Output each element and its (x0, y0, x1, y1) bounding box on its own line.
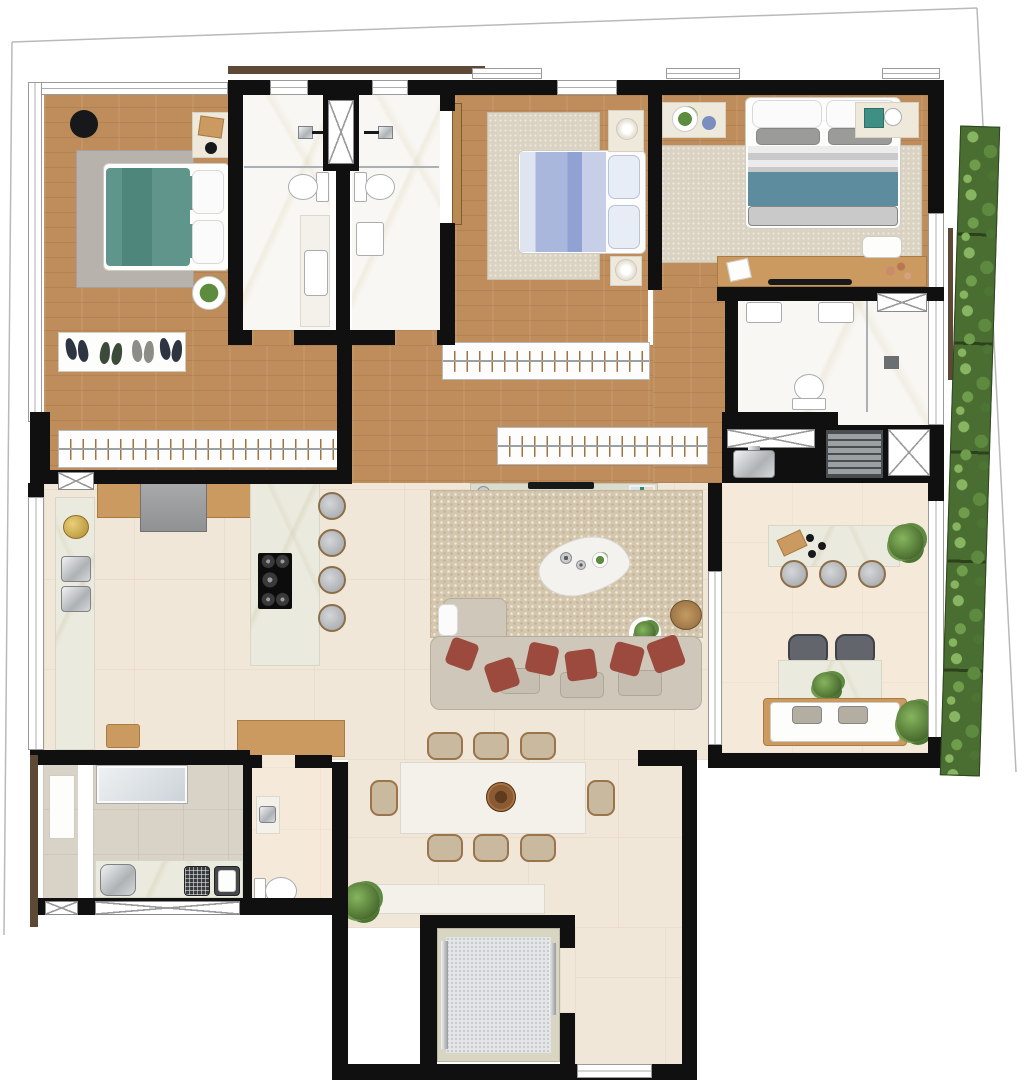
window-bed1-left (28, 82, 42, 422)
bed3-pillow-1 (752, 100, 822, 128)
glass-bath2 (353, 166, 439, 168)
bed3-duvet (748, 146, 898, 174)
bench-kitchen (237, 720, 345, 757)
sink-master-1 (746, 302, 782, 323)
floor-elevator-landing (560, 948, 575, 1013)
window-top-2 (372, 80, 408, 95)
sofa-chaise-pillow (438, 604, 458, 636)
toilet-master-bowl (794, 374, 824, 401)
dining-chair-bottom-1 (427, 834, 463, 862)
deco-nightstand-left (702, 116, 716, 130)
coffee-decor-1 (560, 552, 572, 564)
wall-top-4 (617, 80, 944, 95)
shower-arm-bath2 (364, 131, 379, 134)
window-box-kitchen (58, 472, 94, 490)
sideboard (368, 884, 545, 914)
wall-master-right (928, 80, 944, 213)
facade-strip-top (228, 66, 485, 74)
window-box-2 (666, 68, 740, 79)
wall-lavabo-top-b (295, 755, 332, 768)
bar-cup-2 (818, 542, 826, 550)
tray-bedroom1 (198, 115, 225, 138)
bed1-blanket-fold (122, 168, 152, 266)
wall-top-2 (308, 80, 372, 95)
bed3-foot (748, 206, 898, 226)
wall-lavabo-left (243, 765, 252, 898)
chair-desk (862, 236, 902, 258)
glass-bath1 (244, 166, 330, 168)
bbq-sink (733, 450, 775, 478)
stool-kitchen-3 (318, 566, 346, 594)
dining-chair-top-2 (473, 732, 509, 760)
wall-kitchen-laundry (30, 750, 250, 765)
bar-cup-3 (808, 550, 816, 558)
cutting-board (106, 724, 140, 748)
window-top-3 (557, 80, 617, 95)
bed3-teal-throw (748, 172, 898, 206)
wall-bed23-divider (648, 95, 662, 290)
dining-chair-top-3 (520, 732, 556, 760)
bed1-pillow-2 (192, 220, 224, 264)
sofa-pillow-4 (564, 648, 598, 682)
wall-elevator-left (420, 915, 437, 1080)
window-laundry-glass (97, 766, 187, 803)
towel (218, 870, 236, 892)
shower-glass-master (866, 300, 868, 412)
sofa-pillow-3 (524, 641, 560, 677)
vertical-garden-hedge (940, 126, 1000, 777)
window-bed1-top (40, 82, 228, 95)
dining-chair-right (587, 780, 615, 816)
wall-dining-east-v (682, 750, 697, 1080)
bbq-window (727, 429, 815, 448)
storage-door (49, 775, 75, 839)
facade-strip-left (30, 755, 38, 927)
door-gap-bath1 (252, 330, 294, 346)
cooktop (258, 553, 292, 609)
sink-bath1 (304, 250, 328, 296)
lavabo-sink (259, 806, 276, 823)
plant-nightstand-left (672, 106, 698, 132)
wall-kitchen-left-stub-a (28, 483, 44, 497)
elevator-door-right (549, 943, 556, 1015)
deco-book-teal (864, 108, 884, 128)
wall-elevator-top (420, 915, 575, 928)
sheet-edge (12, 8, 977, 42)
sofa-terrace-seat (770, 702, 900, 742)
window-box-3 (882, 68, 940, 79)
window-laundry-2 (95, 901, 240, 915)
bed2-pillow-2 (608, 205, 640, 249)
shaft-box-bbq (888, 429, 930, 476)
laundry-sink (100, 864, 136, 896)
bed3-cushion-1 (756, 128, 820, 145)
wall-top-1 (228, 80, 270, 95)
bed2-pillow-1 (608, 155, 640, 199)
wardrobe-corridor (497, 427, 708, 465)
bed1-pillow-1 (192, 170, 224, 214)
stool-terrace-3 (858, 560, 886, 588)
coffee-decor-2 (576, 560, 586, 570)
shaft-box-baths (328, 100, 354, 164)
sink-master-2 (818, 302, 854, 323)
desk-tray (768, 279, 852, 285)
fridge (140, 479, 207, 532)
sink-kitchen-2 (61, 586, 91, 612)
centerpiece-bowl (486, 782, 516, 812)
window-terrace-divider (708, 571, 722, 745)
grill (826, 430, 883, 478)
coffee-plant (592, 552, 608, 568)
wall-bed2-left-b (440, 223, 455, 345)
plant-bedroom1 (192, 276, 226, 310)
stool-kitchen-4 (318, 604, 346, 632)
wardrobe-bedroom2 (442, 342, 650, 380)
wardrobe-bedroom1 (58, 430, 338, 468)
door-bedroom2 (452, 103, 462, 225)
cushion-terrace-1 (792, 706, 822, 724)
window-kitchen-left (28, 497, 44, 750)
shower-drain-master (884, 356, 899, 369)
toilet-bath2-bowl (365, 174, 395, 200)
window-laundry-1 (45, 901, 78, 915)
floor-plan-canvas (0, 0, 1024, 1083)
basket-living (670, 600, 702, 630)
wall-bed1-right (228, 95, 243, 345)
door-gap-bath2 (395, 330, 437, 346)
elevator-cab (446, 937, 551, 1053)
dining-chair-left (370, 780, 398, 816)
sink-kitchen-1 (61, 556, 91, 582)
toilet-bath1-bowl (288, 174, 318, 200)
dining-chair-bottom-2 (473, 834, 509, 862)
wall-bath-south-1 (228, 330, 252, 345)
wall-top-3 (408, 80, 557, 95)
deco-roll (884, 108, 902, 126)
column-marker (70, 110, 98, 138)
window-top-1 (270, 80, 308, 95)
dining-chair-bottom-3 (520, 834, 556, 862)
lamp-bed2-bottom (615, 259, 637, 281)
wall-bath-south-3 (437, 330, 455, 345)
stool-kitchen-1 (318, 492, 346, 520)
wall-elevator-right-b (560, 1013, 575, 1080)
cup-bedroom1 (205, 142, 217, 154)
sheet-edge (4, 42, 12, 935)
wall-masterbath-left (725, 300, 738, 412)
wall-elevator-right-a (560, 915, 575, 948)
wall-closet-divider (337, 330, 352, 484)
wall-terrace-south (712, 753, 944, 768)
wall-bed2-left-a (440, 95, 455, 111)
entry-threshold (577, 1064, 652, 1078)
dining-chair-top-1 (427, 732, 463, 760)
floor-foyer (575, 928, 682, 1068)
wall-shaft-below (336, 171, 350, 330)
wall-living-terrace-a (708, 483, 722, 571)
window-box-1 (472, 68, 542, 79)
wall-dining-west (332, 762, 348, 1080)
stool-terrace-1 (780, 560, 808, 588)
shower-head-bath1 (298, 126, 313, 139)
washbasin-bath2 (356, 222, 384, 256)
plant-bar (888, 524, 924, 560)
window-master-right (928, 213, 944, 425)
elevator-door-left (441, 941, 448, 1049)
washer-basket (184, 866, 210, 896)
stool-terrace-2 (819, 560, 847, 588)
fruit-bowl (63, 515, 89, 539)
makeup-desk (883, 260, 913, 282)
cushion-terrace-2 (838, 706, 868, 724)
bed2-duvet (520, 152, 606, 252)
bar-cup-1 (806, 534, 814, 542)
wall-terrace-right-stub-a (928, 483, 944, 501)
plant-table-terrace (812, 672, 842, 698)
shaft-box-master (877, 293, 927, 312)
shower-head-bath2 (378, 126, 393, 139)
lamp-bed2-top (616, 118, 638, 140)
toilet-master-tank (792, 398, 826, 410)
door-gap-lavabo (262, 755, 295, 768)
tv (528, 482, 594, 489)
stool-kitchen-2 (318, 529, 346, 557)
